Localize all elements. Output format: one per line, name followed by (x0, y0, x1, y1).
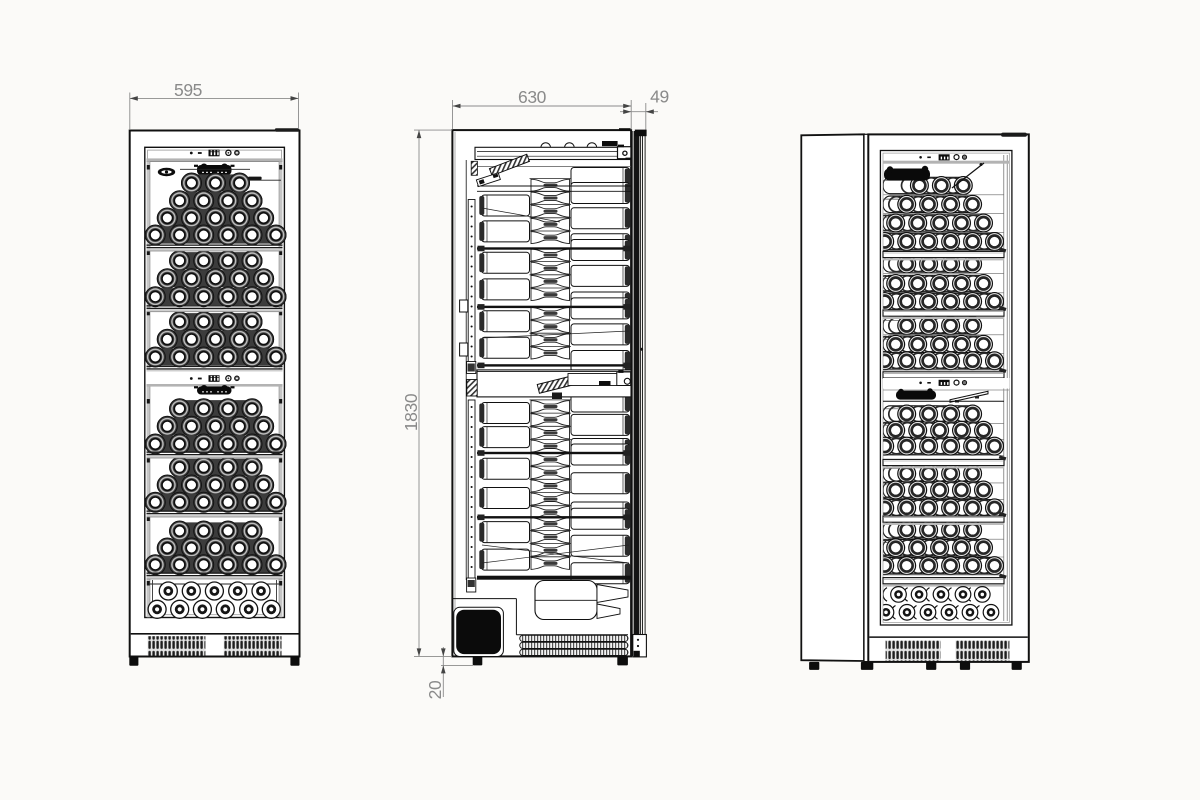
svg-text:595: 595 (174, 80, 202, 100)
svg-text:1830: 1830 (401, 393, 421, 431)
svg-text:630: 630 (518, 87, 547, 107)
svg-text:49: 49 (650, 87, 669, 107)
svg-text:20: 20 (425, 680, 445, 699)
